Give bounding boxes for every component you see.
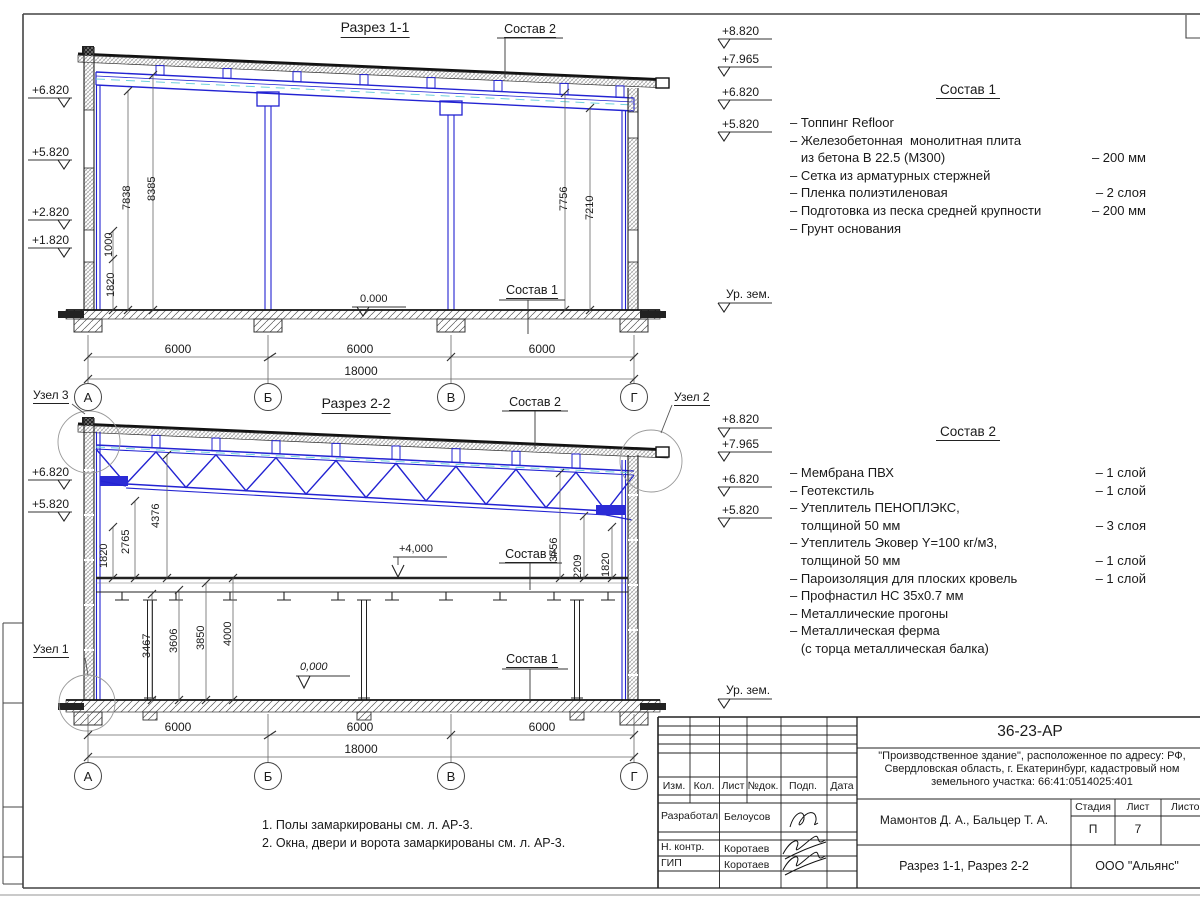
vdim: 3850: [195, 626, 207, 650]
sheets-label: Листов: [1171, 802, 1200, 814]
elev-mark: +5.820: [32, 498, 69, 511]
name-korotaev-1: Коротаев: [724, 844, 769, 856]
elev-mark: +6.820: [32, 84, 69, 97]
axis-bubble-g: Г: [620, 383, 648, 411]
axis-letter: Б: [264, 390, 273, 405]
elev-mark: +5.820: [722, 118, 759, 131]
axis-bubble-a: А: [74, 383, 102, 411]
authors: Мамонтов Д. А., Бальцер Т. А.: [880, 814, 1048, 827]
spec-row: – Металлические прогоны: [790, 606, 1146, 624]
spec-row: – Металлическая ферма: [790, 623, 1146, 641]
spec-row: – Пленка полиэтиленовая– 2 слоя: [790, 185, 1146, 203]
spec-row: – Утеплитель Эковер Y=100 кг/м3,: [790, 535, 1146, 553]
vdim: 7756: [558, 187, 570, 211]
vdim: 1820: [98, 544, 110, 568]
axis-letter: В: [447, 390, 456, 405]
vdim: 4376: [150, 504, 162, 528]
elev-mark: +1.820: [32, 234, 69, 247]
spec-row: – Топпинг Refloor: [790, 115, 1146, 133]
axis-bubble-v: В: [437, 383, 465, 411]
section-1-1-dimensions: [28, 38, 772, 386]
stage-value: П: [1089, 823, 1098, 836]
section1-title: Разрез 1-1: [341, 20, 410, 38]
elev-mark: +5.820: [32, 146, 69, 159]
vdim: 2765: [120, 530, 132, 554]
col-header-podp: Подп.: [789, 781, 817, 793]
document-code: 36-23-АР: [997, 723, 1062, 740]
note-2: 2. Окна, двери и ворота замаркированы см…: [262, 836, 565, 854]
axis-letter: А: [84, 390, 93, 405]
hdim: 6000: [165, 721, 192, 734]
vdim: 7210: [584, 196, 596, 220]
hdim: 6000: [529, 343, 556, 356]
elev-mark: +8.820: [722, 413, 759, 426]
ground-level-label: Ур. зем.: [726, 684, 770, 697]
note-1: 1. Полы замаркированы см. л. АР-3.: [262, 818, 565, 836]
axis-bubble-b: Б: [254, 383, 282, 411]
object-description-line3: земельного участка: 66:41:0514025:401: [931, 776, 1133, 788]
col-header-doc: №док.: [748, 781, 779, 793]
spec-row: толщиной 50 мм– 3 слоя: [790, 518, 1146, 536]
node1-label: Узел 1: [33, 643, 69, 658]
hdim: 6000: [347, 721, 374, 734]
vdim: 3606: [168, 629, 180, 653]
elev-mark: +6.820: [722, 473, 759, 486]
spec-sostav2: Состав 2 – Мембрана ПВХ– 1 слой – Геотек…: [790, 424, 1146, 659]
spec-row: – Профнастил НС 35х0.7 мм: [790, 588, 1146, 606]
section1-level-zero: 0.000: [360, 293, 388, 305]
axis-letter: Г: [630, 769, 637, 784]
vdim: 1000: [103, 233, 115, 257]
section2-level-zero: 0,000: [300, 661, 328, 673]
axis-bubble-a: А: [74, 762, 102, 790]
object-description-line2: Свердловская область, г. Екатеринбург, к…: [885, 763, 1180, 775]
elev-mark: +6.820: [32, 466, 69, 479]
section1-sostav1-label: Состав 1: [506, 283, 558, 299]
vdim: 1820: [105, 273, 117, 297]
company-name: ООО "Альянс": [1095, 859, 1179, 873]
vdim: 2209: [572, 555, 584, 579]
axis-letter: В: [447, 769, 456, 784]
elev-mark: +5.820: [722, 504, 759, 517]
vdim: 4000: [222, 622, 234, 646]
hdim-total: 18000: [344, 365, 377, 378]
section2-level-4000: +4,000: [399, 543, 433, 555]
axis-bubble-v: В: [437, 762, 465, 790]
spec-row: – Пароизоляция для плоских кровель– 1 сл…: [790, 571, 1146, 589]
vdim: 3756: [548, 538, 560, 562]
vdim: 7838: [121, 186, 133, 210]
name-belousov: Белоусов: [724, 812, 770, 824]
col-header-kol: Кол.: [694, 781, 715, 793]
ground-level-label: Ур. зем.: [726, 288, 770, 301]
spec-row: – Грунт основания: [790, 221, 1146, 239]
role-gip: ГИП: [661, 858, 682, 870]
spec-row: – Сетка из арматурных стержней: [790, 168, 1146, 186]
section2-sostav1-label: Состав 1: [506, 652, 558, 668]
axis-letter: Г: [630, 390, 637, 405]
spec-row: – Железобетонная монолитная плита: [790, 133, 1146, 151]
stage-label: Стадия: [1075, 802, 1111, 814]
axis-bubble-b: Б: [254, 762, 282, 790]
hdim: 6000: [165, 343, 192, 356]
spec-row: – Геотекстиль– 1 слой: [790, 483, 1146, 501]
elev-mark: +2.820: [32, 206, 69, 219]
hdim-total: 18000: [344, 743, 377, 756]
object-description-line1: "Производственное здание", расположенное…: [878, 750, 1185, 762]
hdim: 6000: [347, 343, 374, 356]
node3-label: Узел 3: [33, 389, 69, 404]
section2-sostav2-label: Состав 2: [509, 395, 561, 411]
axis-bubble-g: Г: [620, 762, 648, 790]
sheet-label: Лист: [1127, 802, 1150, 814]
spec-row: – Подготовка из песка средней крупности–…: [790, 203, 1146, 221]
spec-sostav1: Состав 1 – Топпинг Refloor – Железобетон…: [790, 82, 1146, 238]
elev-mark: +6.820: [722, 86, 759, 99]
node2-label: Узел 2: [674, 391, 710, 406]
sheet-notes: 1. Полы замаркированы см. л. АР-3. 2. Ок…: [262, 818, 565, 854]
elev-mark: +7.965: [722, 438, 759, 451]
elev-mark: +8.820: [722, 25, 759, 38]
col-header-izm: Изм.: [663, 781, 686, 793]
spec-row: – Утеплитель ПЕНОПЛЭКС,: [790, 500, 1146, 518]
section1-sostav2-label: Состав 2: [504, 22, 556, 38]
section2-title: Разрез 2-2: [322, 396, 391, 414]
spec1-title: Состав 1: [790, 82, 1146, 97]
name-korotaev-2: Коротаев: [724, 860, 769, 872]
spec-row: – Мембрана ПВХ– 1 слой: [790, 465, 1146, 483]
signatures: [783, 813, 826, 875]
signature-razrabotal: [790, 813, 818, 827]
hdim: 6000: [529, 721, 556, 734]
role-razrabotal: Разработал: [661, 811, 718, 823]
spec-row: из бетона В 22.5 (М300)– 200 мм: [790, 150, 1146, 168]
axis-letter: Б: [264, 769, 273, 784]
elev-mark: +7.965: [722, 53, 759, 66]
vdim: 3467: [141, 634, 153, 658]
spec2-title: Состав 2: [790, 424, 1146, 439]
role-nkontr: Н. контр.: [661, 842, 704, 854]
spec-row: (с торца металлическая балка): [790, 641, 1146, 659]
doc-title: Разрез 1-1, Разрез 2-2: [899, 859, 1029, 873]
spec-row: толщиной 50 мм– 1 слой: [790, 553, 1146, 571]
axis-letter: А: [84, 769, 93, 784]
col-header-list: Лист: [722, 781, 745, 793]
vdim: 8385: [146, 177, 158, 201]
sheet-number: 7: [1135, 823, 1142, 836]
vdim: 1820: [600, 553, 612, 577]
drawing-sheet: Разрез 1-1 Состав 2 Состав 1 0.000 +6.82…: [0, 0, 1200, 900]
col-header-data: Дата: [830, 781, 853, 793]
